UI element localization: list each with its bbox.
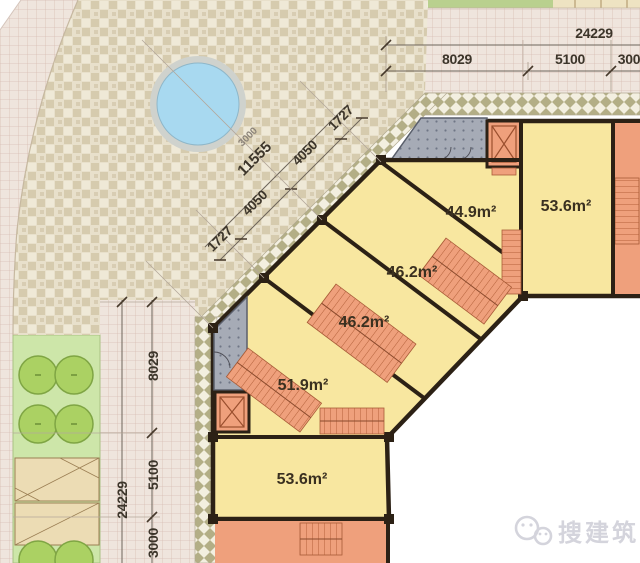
room-area-label: 46.2m²	[339, 314, 390, 331]
room-area-label: 51.9m²	[278, 377, 329, 394]
elevator-shaft	[487, 121, 521, 175]
dim-left-seg: 3000	[145, 528, 161, 558]
planter-hatch	[15, 458, 99, 545]
dim-top-seg: 5100	[555, 51, 585, 67]
stairs	[615, 178, 639, 244]
floor-plan: 44.9m² 53.6m² 46.2m² 46.2m² 51.9m² 53.6m…	[0, 0, 640, 563]
dim-top-seg: 8029	[442, 51, 472, 67]
top-edge-strip	[416, 0, 640, 8]
room-area-label: 53.6m²	[541, 198, 592, 215]
room-area-label: 44.9m²	[446, 204, 497, 221]
dim-left-seg: 5100	[145, 460, 161, 490]
room-area-label: 53.6m²	[277, 471, 328, 488]
pool	[150, 56, 246, 152]
dim-left-seg: 8029	[145, 351, 161, 381]
dim-top-seg: 300	[618, 51, 640, 67]
room-area-label: 46.2m²	[387, 264, 438, 281]
elevator-shaft	[215, 392, 249, 432]
dim-top-total: 24229	[575, 25, 613, 41]
watermark-text: 搜建筑	[558, 519, 639, 547]
floor-plan-screenshot: 44.9m² 53.6m² 46.2m² 46.2m² 51.9m² 53.6m…	[0, 0, 640, 563]
dim-left-total: 24229	[114, 481, 130, 519]
landscape-strip	[13, 335, 100, 563]
